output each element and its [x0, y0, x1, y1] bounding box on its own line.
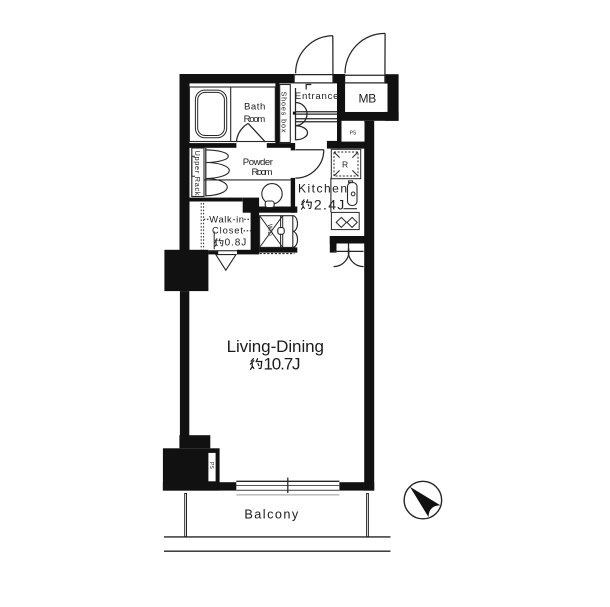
- svg-text:Closet: Closet: [212, 224, 243, 235]
- svg-text:10.7J: 10.7J: [264, 354, 301, 373]
- svg-text:Upper Rack: Upper Rack: [193, 151, 202, 196]
- svg-text:Room: Room: [252, 167, 273, 178]
- svg-text:Shoes box: Shoes box: [280, 92, 289, 133]
- svg-text:PS: PS: [350, 131, 357, 137]
- svg-text:PS: PS: [208, 462, 214, 469]
- svg-text:Bath: Bath: [244, 101, 265, 112]
- svg-text:Room: Room: [244, 114, 266, 125]
- svg-text:R: R: [342, 160, 348, 170]
- svg-text:Entrance: Entrance: [295, 91, 339, 102]
- svg-text:MB: MB: [359, 91, 377, 105]
- svg-text:0.8J: 0.8J: [225, 238, 247, 249]
- svg-text:Walk-in: Walk-in: [209, 213, 244, 224]
- svg-text:Living-Dining: Living-Dining: [227, 337, 324, 356]
- svg-text:W/D: W/D: [266, 224, 272, 236]
- svg-text:2.4J: 2.4J: [314, 196, 344, 212]
